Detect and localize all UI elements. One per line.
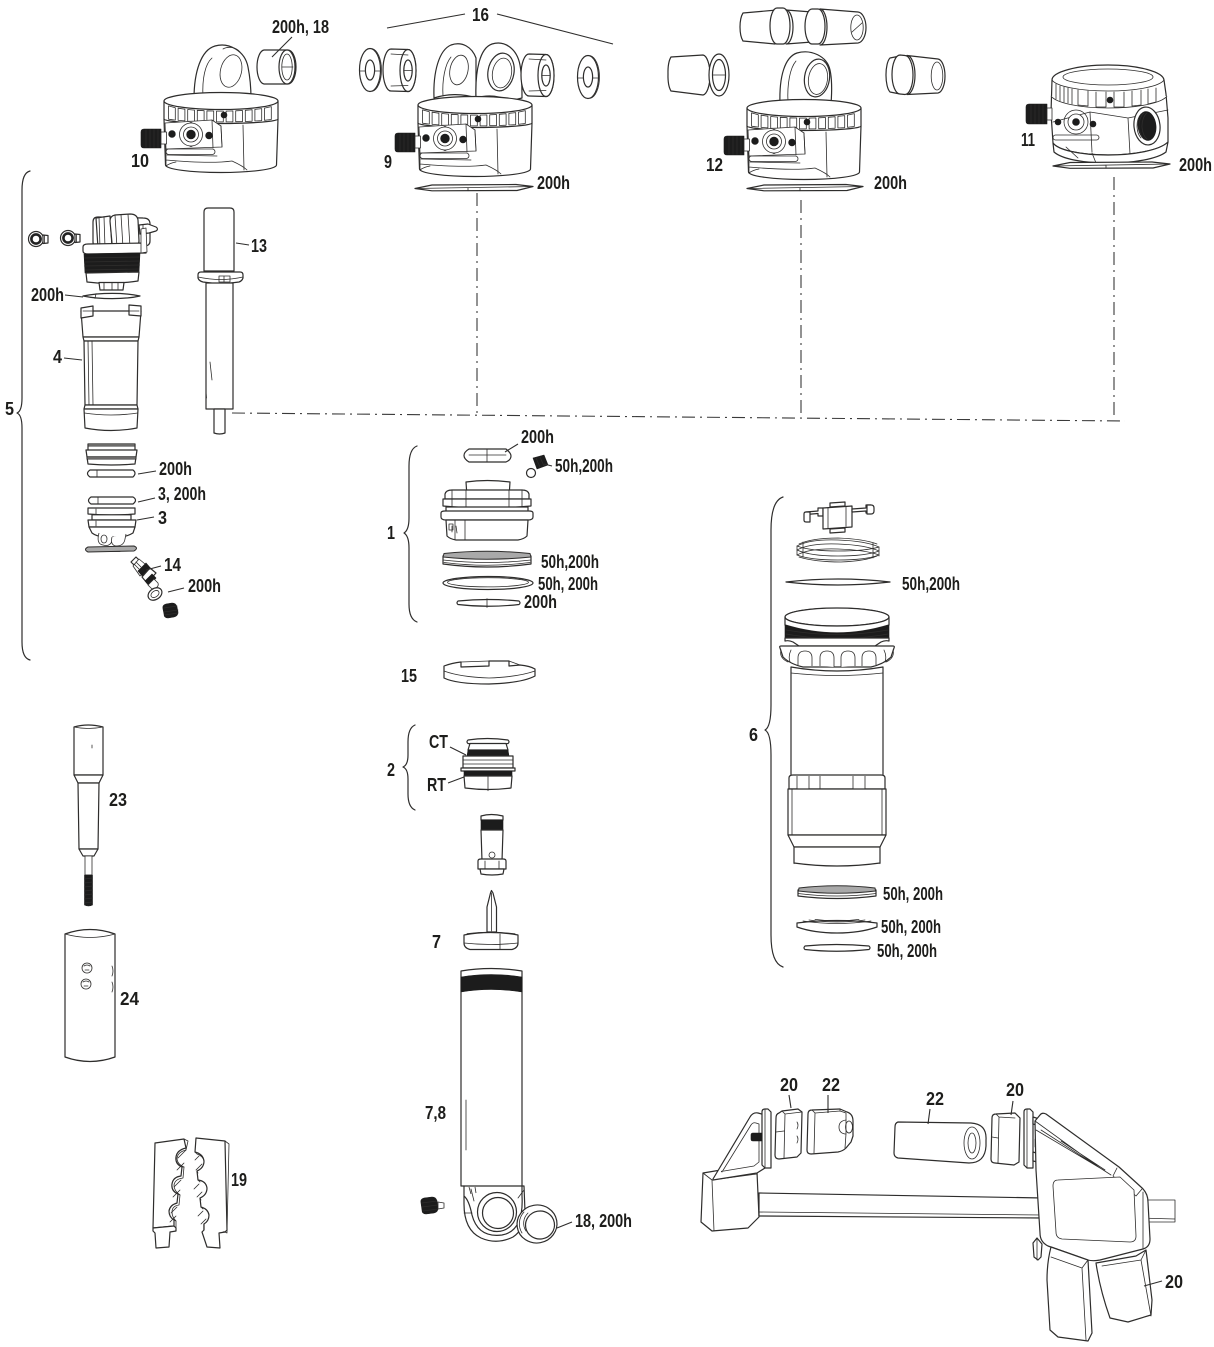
svg-text:10: 10: [131, 151, 149, 171]
svg-text:200h: 200h: [159, 459, 192, 479]
svg-text:11: 11: [1021, 130, 1035, 150]
svg-text:200h: 200h: [537, 173, 570, 193]
svg-text:18, 200h: 18, 200h: [575, 1211, 632, 1231]
svg-text:16: 16: [472, 5, 489, 25]
svg-text:20: 20: [1165, 1272, 1183, 1292]
svg-text:200h: 200h: [31, 285, 64, 305]
svg-text:200h: 200h: [521, 427, 554, 447]
svg-text:24: 24: [120, 989, 139, 1009]
svg-text:1: 1: [387, 523, 395, 543]
svg-text:3: 3: [158, 508, 167, 528]
svg-text:7,8: 7,8: [425, 1103, 446, 1123]
svg-text:CT: CT: [429, 732, 448, 752]
svg-text:50h,200h: 50h,200h: [541, 552, 599, 572]
svg-text:22: 22: [822, 1075, 840, 1095]
svg-text:15: 15: [401, 666, 417, 686]
svg-text:200h: 200h: [1179, 155, 1212, 175]
svg-text:50h,200h: 50h,200h: [902, 574, 960, 594]
svg-text:200h: 200h: [874, 173, 907, 193]
svg-text:19: 19: [231, 1170, 247, 1190]
svg-text:200h: 200h: [524, 592, 557, 612]
svg-text:14: 14: [164, 555, 181, 575]
svg-text:50h, 200h: 50h, 200h: [538, 574, 598, 594]
svg-text:200h, 18: 200h, 18: [272, 17, 329, 37]
svg-text:5: 5: [5, 399, 14, 419]
svg-text:20: 20: [780, 1075, 798, 1095]
svg-text:22: 22: [926, 1089, 944, 1109]
svg-text:12: 12: [706, 155, 723, 175]
svg-text:4: 4: [53, 347, 62, 367]
svg-text:50h,200h: 50h,200h: [555, 456, 613, 476]
svg-text:50h, 200h: 50h, 200h: [883, 884, 943, 904]
svg-text:50h, 200h: 50h, 200h: [877, 941, 937, 961]
svg-text:7: 7: [432, 932, 441, 952]
svg-text:20: 20: [1006, 1080, 1024, 1100]
svg-text:9: 9: [384, 152, 392, 172]
svg-text:2: 2: [387, 760, 395, 780]
svg-text:3, 200h: 3, 200h: [158, 484, 206, 504]
svg-text:13: 13: [251, 236, 267, 256]
svg-text:50h, 200h: 50h, 200h: [881, 917, 941, 937]
svg-text:6: 6: [749, 725, 758, 745]
svg-text:23: 23: [109, 790, 127, 810]
svg-text:200h: 200h: [188, 576, 221, 596]
svg-text:RT: RT: [427, 775, 446, 795]
